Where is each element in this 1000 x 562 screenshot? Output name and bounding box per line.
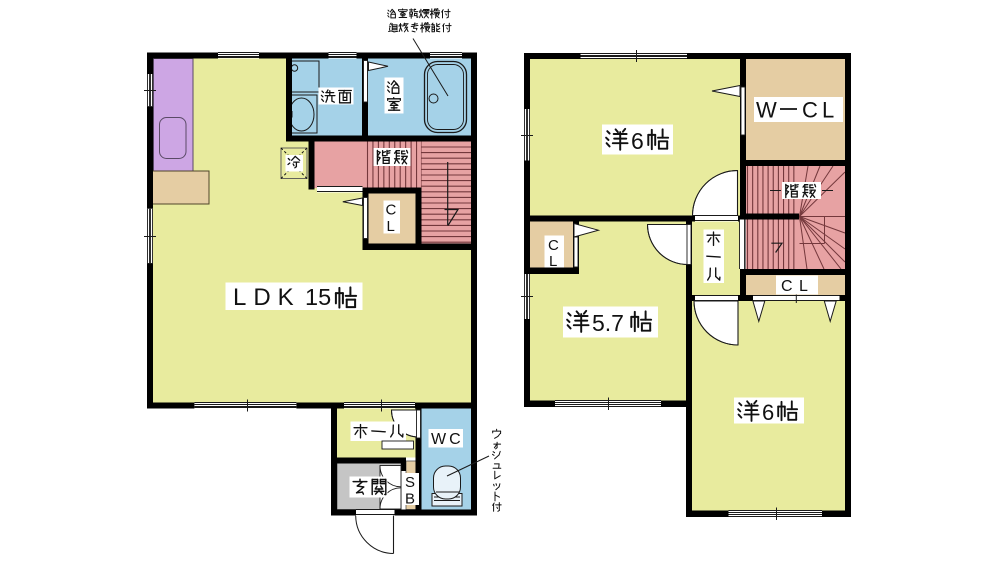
svg-text:C: C bbox=[386, 202, 397, 219]
svg-text:6: 6 bbox=[762, 400, 774, 425]
svg-text:15: 15 bbox=[305, 284, 331, 310]
svg-text:L: L bbox=[549, 253, 557, 270]
svg-text:LDK: LDK bbox=[233, 284, 301, 311]
svg-text:6: 6 bbox=[631, 128, 644, 154]
svg-text:L: L bbox=[822, 98, 834, 123]
svg-text:C: C bbox=[781, 278, 793, 295]
svg-text:L: L bbox=[387, 218, 395, 235]
svg-text:W: W bbox=[756, 98, 777, 123]
svg-text:5.7: 5.7 bbox=[592, 310, 624, 336]
svg-text:L: L bbox=[799, 278, 808, 295]
svg-text:S: S bbox=[405, 474, 415, 491]
svg-text:WC: WC bbox=[431, 431, 464, 448]
svg-text:C: C bbox=[802, 98, 818, 123]
svg-text:C: C bbox=[548, 237, 559, 254]
svg-text:B: B bbox=[405, 491, 415, 508]
